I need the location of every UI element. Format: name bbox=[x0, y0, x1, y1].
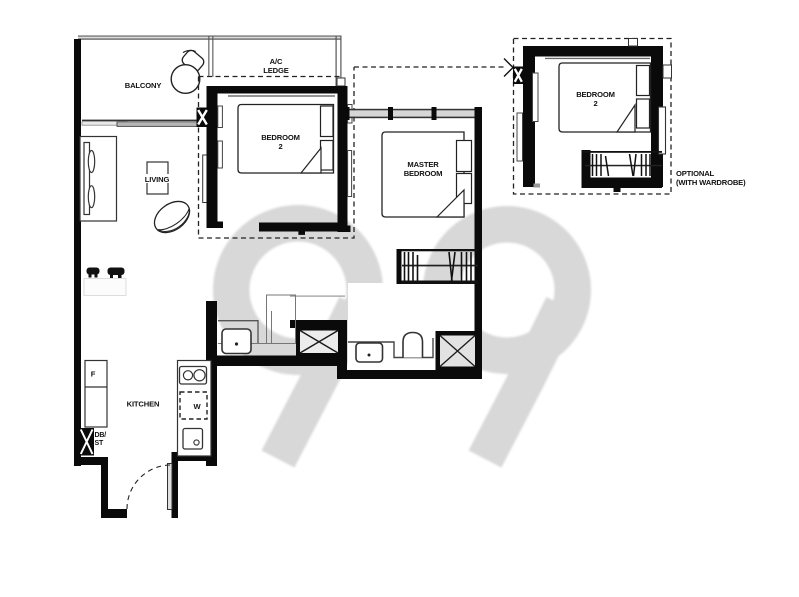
svg-text:W: W bbox=[194, 402, 202, 411]
svg-text:BEDROOM: BEDROOM bbox=[576, 90, 615, 99]
svg-text:(WITH WARDROBE): (WITH WARDROBE) bbox=[676, 178, 746, 187]
svg-text:ST: ST bbox=[95, 440, 104, 447]
svg-text:2: 2 bbox=[278, 142, 282, 151]
svg-text:BALCONY: BALCONY bbox=[125, 81, 162, 90]
svg-text:MASTER: MASTER bbox=[407, 160, 439, 169]
svg-text:OPTIONAL: OPTIONAL bbox=[676, 169, 715, 178]
svg-text:LEDGE: LEDGE bbox=[263, 66, 288, 75]
svg-text:KITCHEN: KITCHEN bbox=[127, 400, 160, 409]
svg-text:DB/: DB/ bbox=[95, 432, 107, 439]
svg-text:A/C: A/C bbox=[270, 57, 283, 66]
svg-text:BEDROOM: BEDROOM bbox=[404, 169, 443, 178]
svg-text:2: 2 bbox=[593, 99, 597, 108]
svg-text:BEDROOM: BEDROOM bbox=[261, 133, 300, 142]
svg-text:LIVING: LIVING bbox=[145, 175, 170, 184]
svg-text:F: F bbox=[91, 370, 96, 379]
